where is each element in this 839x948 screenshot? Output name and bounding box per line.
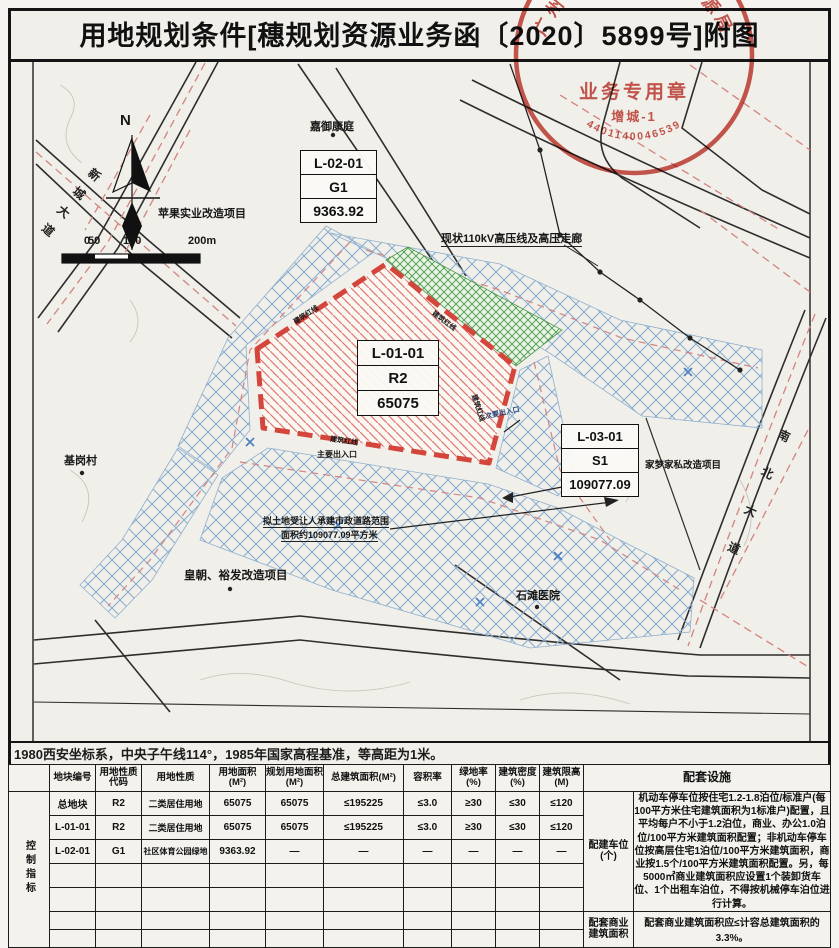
cell: — <box>452 839 496 863</box>
north-label: N <box>120 112 131 129</box>
north-arrow-icon <box>106 135 160 250</box>
col-header: 建筑限高(M) <box>540 765 584 792</box>
cell: 总地块 <box>50 792 96 816</box>
cell: ≤195225 <box>324 792 404 816</box>
cell: — <box>540 839 584 863</box>
cell: 65075 <box>210 815 266 839</box>
col-header: 用地性质 <box>142 765 210 792</box>
road-construction-note-line1: 拟土地受让人承建市政道路范围 <box>263 514 389 528</box>
place-jiameng: 家梦家私改造项目 <box>645 457 721 471</box>
parcel-code: L-02-01 <box>301 151 376 175</box>
svg-text:广州市规划和自然资源局: 广州市规划和自然资源局 <box>530 0 737 39</box>
cell: 65075 <box>266 815 324 839</box>
col-header: 容积率 <box>404 765 452 792</box>
cell: ≥30 <box>452 815 496 839</box>
cell: 65075 <box>210 792 266 816</box>
table-row-empty: 配套商业建筑面积 配套商业建筑面积应≤计容总建筑面积的3.3%。 <box>9 911 831 929</box>
cell: R2 <box>96 815 142 839</box>
cell: ≤195225 <box>324 815 404 839</box>
cell: 二类居住用地 <box>142 792 210 816</box>
stamp-center-text: 业务专用章 <box>579 80 689 103</box>
stamp-org-arc: 广州市规划和自然资源局 <box>530 0 737 39</box>
col-header: 总建筑面积(M²) <box>324 765 404 792</box>
stamp-sub-text: 增城-1 <box>611 109 657 124</box>
place-jiayu: 嘉御康庭 <box>310 118 354 134</box>
table-header-row: 地块编号 用地性质代码 用地性质 用地面积(M²) 规划用地面积(M²) 总建筑… <box>9 765 831 792</box>
road-construction-note-line2: 面积约109077.09平方米 <box>281 528 378 542</box>
scale-bar <box>62 254 200 263</box>
scale-tick-100: 100 <box>123 235 141 247</box>
parcel-use-code: R2 <box>358 366 438 391</box>
cell: ≤30 <box>496 815 540 839</box>
col-header: 建筑密度(%) <box>496 765 540 792</box>
official-stamp: 广州市规划和自然资源局 业务专用章 增城-1 4401140046539 <box>500 0 770 185</box>
control-indicator-table: 地块编号 用地性质代码 用地性质 用地面积(M²) 规划用地面积(M²) 总建筑… <box>8 764 831 948</box>
corner-cell <box>9 765 50 792</box>
cell: L-01-01 <box>50 815 96 839</box>
power-line-label: 现状110kV高压线及高压走廊 <box>441 230 582 247</box>
parcel-box-l-01-01: L-01-01 R2 65075 <box>357 340 439 416</box>
col-header: 用地面积(M²) <box>210 765 266 792</box>
parcel-code: L-01-01 <box>358 341 438 366</box>
col-header: 用地性质代码 <box>96 765 142 792</box>
entrance-main-label: 主要出入口 <box>317 449 357 460</box>
parcel-use-code: S1 <box>562 449 638 473</box>
cell: ≤120 <box>540 792 584 816</box>
cell: — <box>324 839 404 863</box>
parcel-box-l-03-01: L-03-01 S1 109077.09 <box>561 424 639 497</box>
place-shitan: 石滩医院 <box>516 587 560 603</box>
cell: ≤3.0 <box>404 792 452 816</box>
place-huangchao: 皇朝、裕发改造项目 <box>184 567 288 583</box>
table-row: 控制指标 总地块 R2 二类居住用地 65075 65075 ≤195225 ≤… <box>9 792 831 816</box>
leader-arrow <box>604 497 619 507</box>
cell: L-02-01 <box>50 839 96 863</box>
cell: ≥30 <box>452 792 496 816</box>
parcel-box-l-02-01: L-02-01 G1 9363.92 <box>300 150 377 223</box>
cell: ≤3.0 <box>404 815 452 839</box>
cell: — <box>496 839 540 863</box>
cell: R2 <box>96 792 142 816</box>
scale-tick-200: 200m <box>188 235 216 247</box>
cell: — <box>404 839 452 863</box>
map-note: 1980西安坐标系，中央子午线114°，1985年国家高程基准，等高距为1米。 <box>8 741 831 764</box>
place-jigang: 基岗村 <box>64 452 97 468</box>
parcel-code: L-03-01 <box>562 425 638 449</box>
parking-requirements-text: 机动车停车位按住宅1.2-1.8泊位/标准户(每100平方米住宅建筑面积为1标准… <box>634 792 831 912</box>
col-header-facilities: 配套设施 <box>584 765 831 792</box>
parcel-area: 9363.92 <box>301 199 376 222</box>
parking-label: 配建车位(个) <box>584 792 634 912</box>
cell: 65075 <box>266 792 324 816</box>
parcel-area: 65075 <box>358 391 438 415</box>
cell: 9363.92 <box>210 839 266 863</box>
cell: ≤120 <box>540 815 584 839</box>
parcel-use-code: G1 <box>301 175 376 199</box>
left-vertical-header: 控制指标 <box>9 792 50 948</box>
scale-tick-50: 50 <box>88 235 100 247</box>
cell: ≤30 <box>496 792 540 816</box>
cell: G1 <box>96 839 142 863</box>
col-header: 规划用地面积(M²) <box>266 765 324 792</box>
place-pingguo: 苹果实业改造项目 <box>158 205 246 221</box>
col-header: 绿地率(%) <box>452 765 496 792</box>
cell: 社区体育公园绿地 <box>142 839 210 863</box>
cell: — <box>266 839 324 863</box>
col-header: 地块编号 <box>50 765 96 792</box>
parcel-area: 109077.09 <box>562 473 638 496</box>
cell: 二类居住用地 <box>142 815 210 839</box>
